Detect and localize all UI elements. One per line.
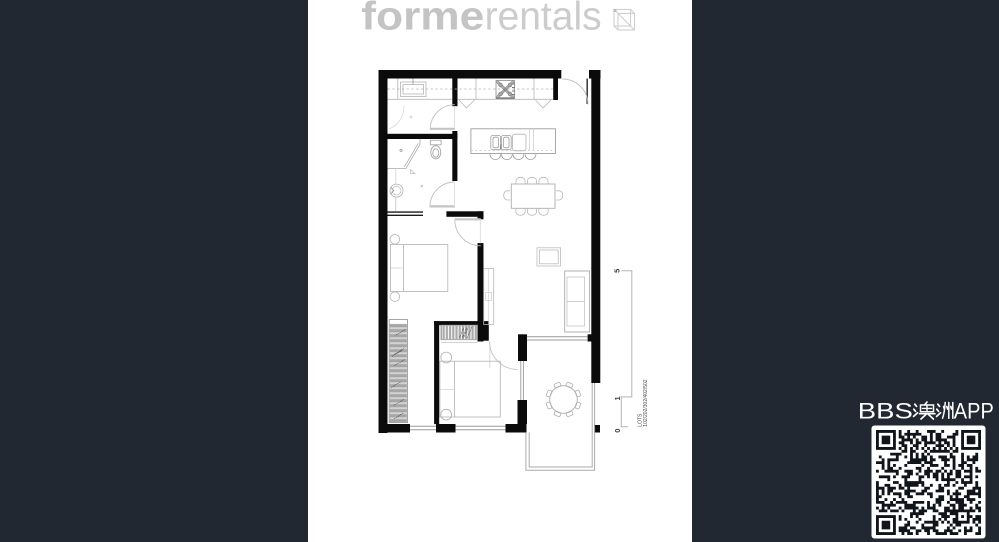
svg-text:forme: forme bbox=[361, 0, 484, 39]
svg-text:5: 5 bbox=[613, 269, 622, 273]
svg-text:1: 1 bbox=[613, 396, 622, 400]
svg-text:0: 0 bbox=[613, 429, 622, 433]
svg-text:BBS: BBS bbox=[858, 398, 913, 423]
svg-text:APP: APP bbox=[954, 398, 994, 423]
svg-text:rentals: rentals bbox=[485, 0, 602, 39]
svg-text:102/202/302/402/502: 102/202/302/402/502 bbox=[643, 379, 649, 426]
